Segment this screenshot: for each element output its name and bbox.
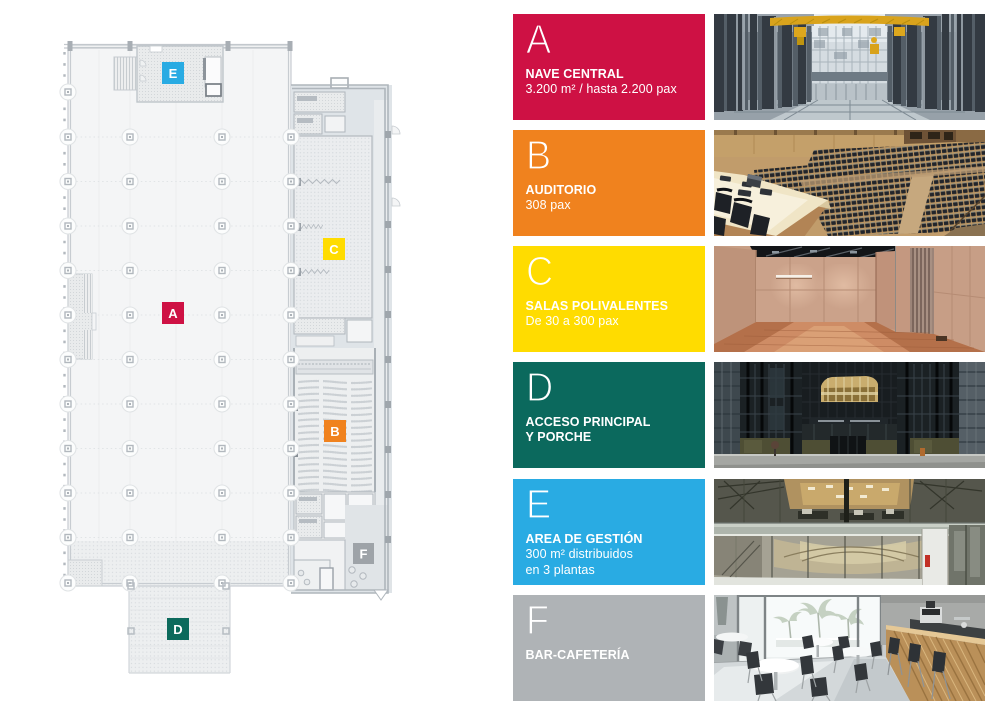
svg-text:A: A (168, 306, 178, 321)
svg-text:E: E (169, 66, 178, 81)
svg-text:D: D (173, 622, 182, 637)
svg-text:F: F (360, 547, 368, 562)
svg-text:B: B (330, 424, 339, 439)
svg-text:C: C (329, 242, 339, 257)
